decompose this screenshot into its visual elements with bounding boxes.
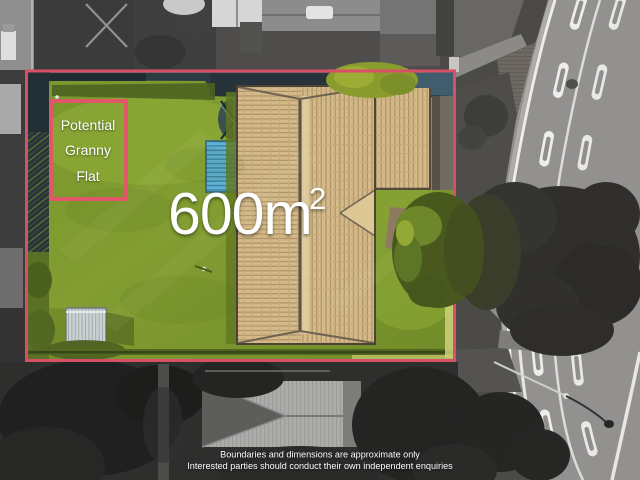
svg-text:600m: 600m: [168, 181, 312, 247]
svg-text:Boundaries and dimensions are: Boundaries and dimensions are approximat…: [220, 450, 420, 460]
svg-text:Granny: Granny: [65, 142, 111, 158]
svg-text:Potential: Potential: [61, 117, 115, 133]
svg-text:Interested parties should cond: Interested parties should conduct their …: [187, 461, 453, 471]
svg-text:Flat: Flat: [76, 168, 99, 184]
svg-text:2: 2: [309, 181, 326, 216]
